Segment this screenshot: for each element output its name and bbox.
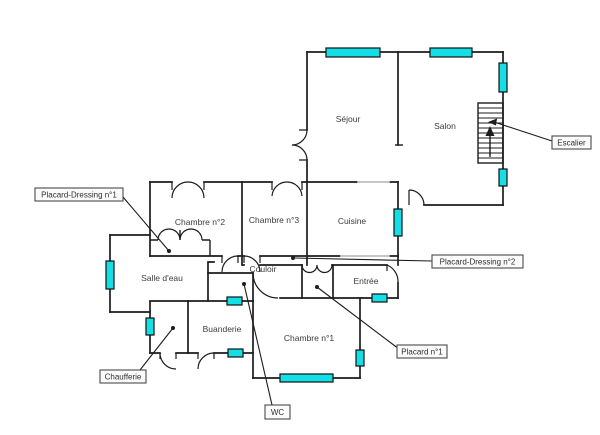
room-label-couloir: Couloir [250,264,277,274]
callout-label: Escalier [557,139,586,148]
callout-label: WC [271,408,285,417]
stairs-up-arrow-icon [486,126,495,157]
window-entree-bottom [372,294,387,302]
window-cuisine-right [394,209,402,236]
window-chambre1-right [356,350,364,366]
callout-wc: WC [242,282,290,419]
callout-placard-dressing-2: Placard-Dressing n°2 [291,255,523,268]
window-salon-right-lower [499,169,507,186]
room-label-chambre-1: Chambre n°1 [284,333,334,343]
room-label-chambre-3: Chambre n°3 [249,215,299,225]
window-chambre1-bottom [280,374,333,382]
room-label-entree: Entrée [353,276,378,286]
room-label-salon: Salon [434,121,456,131]
room-label-chambre-2: Chambre n°2 [175,217,225,227]
room-label-salle-deau: Salle d'eau [141,273,183,283]
window-buanderie-top [227,297,242,305]
window-salon-top [430,48,472,57]
callout-label: Placard n°1 [401,348,443,357]
window-buanderie-bottom [228,349,243,357]
callout-label: Chaufferie [105,373,142,382]
walls [110,52,503,378]
window-salon-right-upper [499,63,507,92]
window-chaufferie-left [146,318,154,335]
window-salle-deau-left [106,261,114,289]
floor-plan-canvas: Séjour Salon Chambre n°2 Chambre n°3 Cui… [0,0,600,435]
room-label-sejour: Séjour [336,114,361,124]
callout-chaufferie: Chaufferie [100,326,175,383]
room-label-cuisine: Cuisine [338,216,367,226]
callout-label: Placard-Dressing n°2 [440,258,516,267]
staircase-icon [478,103,503,163]
floor-plan-page: Séjour Salon Chambre n°2 Chambre n°3 Cui… [0,0,600,435]
room-label-buanderie: Buanderie [203,324,242,334]
window-sejour-top [326,48,380,57]
callout-label: Placard-Dressing n°1 [41,191,117,200]
